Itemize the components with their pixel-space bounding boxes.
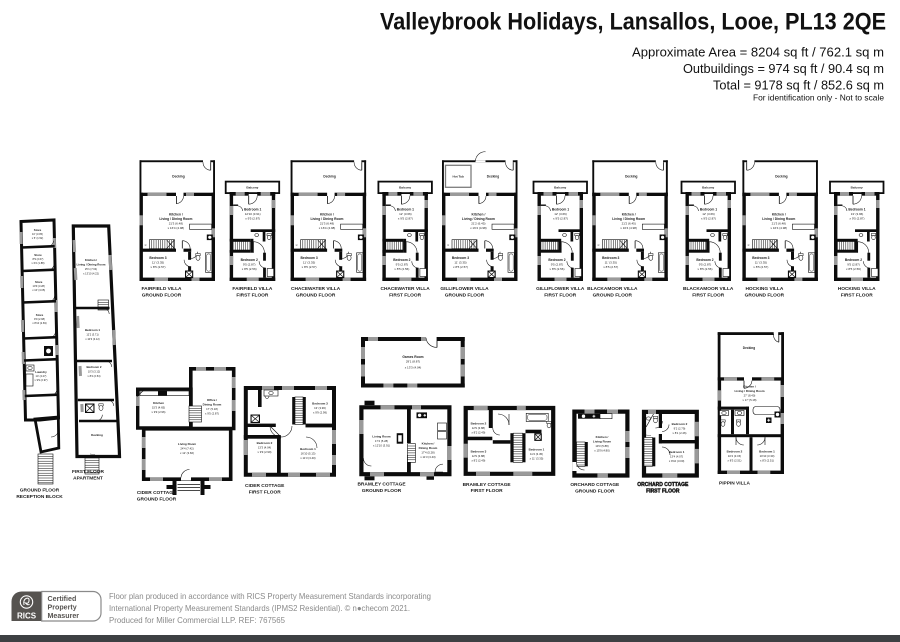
- svg-text:Bedroom 3: Bedroom 3: [452, 256, 469, 260]
- svg-text:12' (3.66): 12' (3.66): [554, 212, 567, 216]
- svg-text:17'4 (5.28): 17'4 (5.28): [421, 451, 434, 455]
- svg-text:Down: Down: [90, 454, 96, 456]
- svg-text:9'9 (2.98): 9'9 (2.98): [34, 317, 45, 321]
- svg-text:Floor plan produced in accorda: Floor plan produced in accordance with R…: [109, 591, 431, 601]
- svg-text:Kitchen /: Kitchen /: [743, 385, 756, 389]
- svg-text:11' (3.35): 11' (3.35): [152, 261, 164, 265]
- svg-text:16'10 (5.13): 16'10 (5.13): [301, 452, 316, 456]
- svg-text:x 16'4 (4.98): x 16'4 (4.98): [620, 226, 637, 230]
- svg-text:x 9'9 (2.99): x 9'9 (2.99): [313, 411, 327, 415]
- svg-text:Kitchen /: Kitchen /: [169, 213, 183, 217]
- svg-text:Living / Dining Room: Living / Dining Room: [462, 217, 495, 221]
- svg-text:Bedroom 2: Bedroom 2: [257, 441, 273, 445]
- svg-text:ORCHARD COTTAGE: ORCHARD COTTAGE: [570, 482, 620, 488]
- svg-text:Bedroom 1: Bedroom 1: [244, 208, 261, 212]
- svg-text:FIRST FLOOR: FIRST FLOOR: [389, 292, 422, 298]
- svg-text:Bedroom 2: Bedroom 2: [86, 365, 101, 369]
- svg-text:Living / Dining Room: Living / Dining Room: [762, 217, 795, 221]
- svg-text:Balcony: Balcony: [399, 185, 411, 189]
- svg-text:x 9'10 (3.00): x 9'10 (3.00): [669, 459, 685, 463]
- svg-text:x 11' (3.35): x 11' (3.35): [530, 457, 544, 461]
- svg-text:Dining Room: Dining Room: [419, 446, 438, 450]
- svg-text:Bedroom 1: Bedroom 1: [759, 450, 775, 454]
- svg-text:Store: Store: [34, 253, 42, 257]
- svg-text:RECEPTION BLOCK: RECEPTION BLOCK: [16, 494, 63, 500]
- svg-text:x 8'5 (2.56): x 8'5 (2.56): [698, 267, 713, 271]
- svg-text:Outbuildings = 974 sq ft / 90.: Outbuildings = 974 sq ft / 90.4 sq m: [683, 61, 884, 76]
- svg-text:12'10 (3.91): 12'10 (3.91): [245, 212, 261, 216]
- svg-text:Kitchen /: Kitchen /: [596, 435, 609, 439]
- svg-text:x 8'5 (2.56): x 8'5 (2.56): [242, 267, 257, 271]
- svg-text:x 9'5 (2.87): x 9'5 (2.87): [205, 412, 219, 416]
- svg-text:FIRST FLOOR: FIRST FLOOR: [236, 292, 269, 298]
- svg-text:Dining Room: Dining Room: [203, 403, 222, 407]
- svg-text:Bedroom 2: Bedroom 2: [672, 422, 688, 426]
- svg-text:Bedroom 3: Bedroom 3: [300, 256, 317, 260]
- svg-text:11' (3.35): 11' (3.35): [303, 261, 315, 265]
- svg-text:x 8'5 (2.57): x 8'5 (2.57): [753, 265, 768, 269]
- svg-text:Decking: Decking: [625, 175, 637, 179]
- svg-text:21'2 (6.45): 21'2 (6.45): [471, 222, 485, 226]
- svg-text:x 9'5 (2.87): x 9'5 (2.87): [245, 217, 260, 221]
- svg-text:x 13'10 (4.22): x 13'10 (4.22): [83, 272, 99, 276]
- svg-text:Bedroom 2: Bedroom 2: [241, 258, 258, 262]
- svg-text:x 16'4 (4.98): x 16'4 (4.98): [168, 226, 185, 230]
- svg-text:21'2 (6.45): 21'2 (6.45): [622, 222, 636, 226]
- svg-text:Store: Store: [35, 280, 43, 284]
- svg-text:Games Room: Games Room: [402, 355, 423, 359]
- svg-text:GROUND FLOOR: GROUND FLOOR: [575, 488, 615, 494]
- svg-text:15'3 (4.65): 15'3 (4.65): [152, 406, 165, 410]
- svg-text:11'4 (3.45): 11'4 (3.45): [530, 452, 543, 456]
- svg-text:x 8'3 (2.51): x 8'3 (2.51): [760, 459, 774, 463]
- svg-text:FAIRFIELD VILLA: FAIRFIELD VILLA: [142, 286, 183, 292]
- svg-text:10'3 (3.12): 10'3 (3.12): [88, 370, 100, 374]
- svg-text:x 8'5 (2.56): x 8'5 (2.56): [550, 267, 565, 271]
- svg-text:Decking: Decking: [743, 346, 755, 350]
- svg-text:Living / Dining Room: Living / Dining Room: [735, 389, 765, 393]
- svg-text:PIPPIN VILLA: PIPPIN VILLA: [719, 480, 750, 486]
- svg-text:Kitchen /: Kitchen /: [622, 213, 636, 217]
- svg-text:9'5 (2.87): 9'5 (2.87): [551, 263, 564, 267]
- svg-text:CIDER COTTAGE: CIDER COTTAGE: [137, 490, 177, 496]
- svg-text:x 8'5 (2.57): x 8'5 (2.57): [302, 265, 317, 269]
- svg-text:x 8'5 (2.57): x 8'5 (2.57): [151, 265, 166, 269]
- svg-text:24'4 (7.42): 24'4 (7.42): [180, 447, 193, 451]
- svg-text:APARTMENT: APARTMENT: [73, 475, 103, 481]
- svg-text:12'9 (3.88): 12'9 (3.88): [472, 426, 485, 430]
- svg-text:x 8'10 (2.69): x 8'10 (2.69): [32, 321, 46, 325]
- svg-text:ORCHARD COTTAGE: ORCHARD COTTAGE: [637, 482, 689, 488]
- svg-text:13'4 (4.07): 13'4 (4.07): [670, 455, 683, 459]
- svg-text:Living / Dining Room: Living / Dining Room: [311, 217, 344, 221]
- svg-text:Living Room: Living Room: [593, 440, 611, 444]
- svg-text:x 16'4 (4.98): x 16'4 (4.98): [470, 226, 487, 230]
- svg-text:BLACKAMOOR VILLA: BLACKAMOOR VILLA: [683, 286, 734, 292]
- svg-text:GROUND FLOOR: GROUND FLOOR: [362, 488, 402, 494]
- svg-text:8'9 (2.67): 8'9 (2.67): [33, 257, 44, 261]
- svg-text:13'3 (4.04): 13'3 (4.04): [258, 446, 271, 450]
- svg-text:Bedroom 1: Bedroom 1: [552, 208, 569, 212]
- svg-text:21'3 (6.48): 21'3 (6.48): [772, 222, 786, 226]
- svg-text:x 5' (1.52): x 5' (1.52): [32, 236, 44, 240]
- svg-text:11' (3.35): 11' (3.35): [454, 261, 466, 265]
- svg-text:x 9'9 (2.99): x 9'9 (2.99): [258, 450, 272, 454]
- svg-text:Decking: Decking: [172, 175, 184, 179]
- svg-text:Kitchen /: Kitchen /: [85, 258, 97, 262]
- svg-text:10'4 (3.15): 10'4 (3.15): [728, 454, 741, 458]
- svg-text:Bedroom 3: Bedroom 3: [752, 256, 769, 260]
- svg-text:Produced for Miller Commercial: Produced for Miller Commercial LLP. REF:…: [109, 615, 285, 625]
- svg-text:11' (3.35): 11' (3.35): [755, 261, 767, 265]
- svg-text:Bedroom 3: Bedroom 3: [312, 402, 328, 406]
- svg-text:Bedroom 3: Bedroom 3: [602, 256, 619, 260]
- svg-text:x 8'5 (2.57): x 8'5 (2.57): [603, 265, 618, 269]
- svg-text:Bedroom 2: Bedroom 2: [727, 450, 743, 454]
- svg-text:x 8'5 (2.57): x 8'5 (2.57): [453, 265, 468, 269]
- svg-text:Bedroom 2: Bedroom 2: [471, 422, 487, 426]
- svg-text:CHACEWATER VILLA: CHACEWATER VILLA: [291, 286, 341, 292]
- svg-text:19'3 (5.88): 19'3 (5.88): [595, 444, 608, 448]
- svg-text:x 17' (5.18): x 17' (5.18): [743, 398, 757, 402]
- svg-text:Bedroom 1: Bedroom 1: [300, 447, 316, 451]
- svg-text:x 9'9 (2.96): x 9'9 (2.96): [152, 410, 166, 414]
- svg-text:GROUND FLOOR: GROUND FLOOR: [593, 292, 633, 298]
- svg-text:x 11'3 (3.40): x 11'3 (3.40): [300, 456, 315, 460]
- svg-text:x 9'5 (2.87): x 9'5 (2.87): [398, 217, 413, 221]
- svg-text:Balcony: Balcony: [702, 185, 714, 189]
- svg-text:14' (4.27): 14' (4.27): [36, 374, 47, 378]
- svg-text:x 9'5 (2.87): x 9'5 (2.87): [553, 217, 568, 221]
- svg-text:x 9'5 (2.87): x 9'5 (2.87): [850, 217, 865, 221]
- svg-text:Kitchen /: Kitchen /: [320, 213, 334, 217]
- svg-text:9'5 (2.87): 9'5 (2.87): [847, 263, 860, 267]
- svg-text:FIRST FLOOR: FIRST FLOOR: [249, 489, 282, 495]
- svg-text:Decking: Decking: [91, 433, 103, 437]
- svg-text:Total = 9178 sq ft / 852.6 sq: Total = 9178 sq ft / 852.6 sq m: [713, 78, 884, 93]
- svg-text:FAIRFIELD VILLA: FAIRFIELD VILLA: [232, 286, 273, 292]
- svg-text:Measurer: Measurer: [48, 612, 80, 620]
- svg-text:HOCKING VILLA: HOCKING VILLA: [745, 286, 783, 292]
- svg-text:25'1 (7.64): 25'1 (7.64): [85, 267, 97, 271]
- svg-text:BLACKAMOOR VILLA: BLACKAMOOR VILLA: [587, 286, 638, 292]
- svg-text:FIRST FLOOR: FIRST FLOOR: [544, 292, 577, 298]
- svg-text:GROUND FLOOR: GROUND FLOOR: [20, 488, 60, 494]
- svg-text:9'5 (2.87): 9'5 (2.87): [699, 263, 712, 267]
- svg-text:Living Room: Living Room: [178, 442, 196, 446]
- svg-text:FIRST FLOOR: FIRST FLOOR: [646, 488, 680, 494]
- svg-text:12' (3.66): 12' (3.66): [399, 212, 412, 216]
- svg-text:Kitchen /: Kitchen /: [471, 213, 485, 217]
- svg-text:Living / Dining Room: Living / Dining Room: [612, 217, 645, 221]
- svg-text:x 8'5 (2.56): x 8'5 (2.56): [846, 267, 861, 271]
- svg-text:BRAMLEY COTTAGE: BRAMLEY COTTAGE: [463, 482, 512, 488]
- svg-text:FIRST FLOOR: FIRST FLOOR: [841, 292, 874, 298]
- svg-text:Kitchen /: Kitchen /: [422, 442, 435, 446]
- svg-text:Living / Dining Room: Living / Dining Room: [159, 217, 192, 221]
- svg-text:Living Room: Living Room: [372, 435, 390, 439]
- svg-text:International Property Measure: International Property Measurement Stand…: [109, 603, 410, 613]
- svg-text:12' (3.66): 12' (3.66): [702, 212, 715, 216]
- svg-text:Bedroom 1: Bedroom 1: [669, 450, 685, 454]
- svg-text:x 16'4 (4.98): x 16'4 (4.98): [771, 226, 788, 230]
- svg-text:Approximate Area = 8204 sq ft: Approximate Area = 8204 sq ft / 762.1 sq…: [632, 45, 884, 60]
- svg-text:Bedroom 1: Bedroom 1: [85, 328, 100, 332]
- svg-text:GROUND FLOOR: GROUND FLOOR: [745, 292, 785, 298]
- svg-text:x 9'9 (2.97): x 9'9 (2.97): [35, 378, 48, 382]
- svg-text:21'3 (6.48): 21'3 (6.48): [320, 222, 334, 226]
- svg-text:11' (3.35): 11' (3.35): [605, 261, 617, 265]
- svg-text:Hot Tub: Hot Tub: [452, 175, 464, 179]
- svg-text:9'5 (2.87): 9'5 (2.87): [243, 263, 256, 267]
- svg-text:12'2 (3.71): 12'2 (3.71): [86, 333, 98, 337]
- svg-text:Bedroom 2: Bedroom 2: [696, 258, 713, 262]
- svg-text:Balcony: Balcony: [554, 185, 566, 189]
- svg-text:Property: Property: [48, 603, 77, 611]
- svg-text:Decking: Decking: [323, 175, 335, 179]
- svg-text:21'3 (6.48): 21'3 (6.48): [169, 222, 183, 226]
- svg-text:Bedroom 1: Bedroom 1: [529, 448, 545, 452]
- svg-text:x 13'3 (4.04): x 13'3 (4.04): [405, 366, 422, 370]
- svg-text:x 9'5 (2.87): x 9'5 (2.87): [701, 217, 716, 221]
- svg-text:x 8'2 (2.49): x 8'2 (2.49): [471, 431, 485, 435]
- svg-text:Bedroom 2: Bedroom 2: [548, 258, 565, 262]
- svg-text:13' (3.96): 13' (3.96): [851, 212, 864, 216]
- svg-text:x 8'3 (2.51): x 8'3 (2.51): [728, 459, 742, 463]
- svg-text:Certified: Certified: [48, 595, 77, 603]
- svg-text:10' (3.05): 10' (3.05): [32, 232, 43, 236]
- svg-text:GROUND FLOOR: GROUND FLOOR: [296, 292, 336, 298]
- svg-text:RICS: RICS: [17, 612, 37, 621]
- svg-text:Bedroom 3: Bedroom 3: [149, 256, 166, 260]
- svg-text:CHACEWATER VILLA: CHACEWATER VILLA: [380, 286, 430, 292]
- svg-text:x 16'4 (4.98): x 16'4 (4.98): [319, 226, 336, 230]
- svg-text:17' (5.18): 17' (5.18): [206, 407, 218, 411]
- svg-text:Balcony: Balcony: [246, 185, 258, 189]
- svg-text:Bedroom 1: Bedroom 1: [397, 208, 414, 212]
- svg-text:Store: Store: [34, 228, 42, 232]
- svg-text:Kitchen /: Kitchen /: [772, 213, 786, 217]
- svg-text:Bedroom 2: Bedroom 2: [845, 258, 862, 262]
- svg-text:9'2 (2.79): 9'2 (2.79): [674, 427, 686, 431]
- svg-text:27' (8.40): 27' (8.40): [744, 394, 756, 398]
- svg-text:GROUND FLOOR: GROUND FLOOR: [137, 497, 177, 503]
- svg-text:FIRST FLOOR: FIRST FLOOR: [72, 469, 105, 475]
- svg-text:Bedroom 1: Bedroom 1: [700, 208, 717, 212]
- svg-text:HOCKING VILLA: HOCKING VILLA: [838, 286, 876, 292]
- svg-text:Laundry: Laundry: [35, 370, 47, 374]
- svg-text:Decking: Decking: [487, 175, 499, 179]
- svg-text:x 11'3 (3.43): x 11'3 (3.43): [420, 455, 435, 459]
- svg-text:x 12' (3.66): x 12' (3.66): [180, 451, 194, 455]
- svg-text:GROUND FLOOR: GROUND FLOOR: [445, 292, 485, 298]
- svg-text:GILLIFLOWER VILLA: GILLIFLOWER VILLA: [536, 286, 585, 292]
- svg-text:x 8'2 (2.49): x 8'2 (2.49): [471, 459, 485, 463]
- svg-text:x 15'9 (4.80): x 15'9 (4.80): [594, 449, 610, 453]
- svg-text:GROUND FLOOR: GROUND FLOOR: [142, 292, 182, 298]
- svg-text:Bedroom 1: Bedroom 1: [848, 208, 865, 212]
- svg-text:For identification only - Not: For identification only - Not to scale: [753, 93, 884, 103]
- svg-text:Living / Dining Room: Living / Dining Room: [77, 263, 106, 267]
- svg-text:GILLIFLOWER VILLA: GILLIFLOWER VILLA: [440, 286, 489, 292]
- svg-text:17'4 (5.28): 17'4 (5.28): [375, 439, 388, 443]
- svg-text:x 8'5 (2.56): x 8'5 (2.56): [394, 267, 409, 271]
- svg-text:Balcony: Balcony: [851, 185, 863, 189]
- svg-text:Kitchen: Kitchen: [153, 401, 164, 405]
- svg-text:BRAMLEY COTTAGE: BRAMLEY COTTAGE: [357, 482, 406, 488]
- svg-text:Bedroom 2: Bedroom 2: [393, 258, 410, 262]
- svg-text:Store: Store: [36, 313, 44, 317]
- svg-text:10'9 (3.28): 10'9 (3.28): [33, 284, 45, 288]
- svg-text:x 6'2 (1.88): x 6'2 (1.88): [32, 261, 45, 265]
- svg-text:12'9 (3.88): 12'9 (3.88): [472, 454, 485, 458]
- svg-text:10'10 (3.30): 10'10 (3.30): [760, 454, 775, 458]
- svg-text:x 8'1 (2.46): x 8'1 (2.46): [673, 431, 687, 435]
- svg-text:x 12'10 (3.91): x 12'10 (3.91): [373, 444, 390, 448]
- svg-text:Valleybrook Holidays, Lansallo: Valleybrook Holidays, Lansallos, Looe, P…: [380, 9, 886, 36]
- svg-text:FIRST FLOOR: FIRST FLOOR: [692, 292, 725, 298]
- svg-text:29'1 (8.87): 29'1 (8.87): [406, 360, 420, 364]
- svg-text:FIRST FLOOR: FIRST FLOOR: [471, 488, 504, 494]
- svg-text:Decking: Decking: [775, 175, 787, 179]
- svg-text:x 10' (3.05): x 10' (3.05): [32, 288, 45, 292]
- svg-text:9'5 (2.87): 9'5 (2.87): [396, 263, 409, 267]
- svg-text:Bedroom 3: Bedroom 3: [471, 450, 487, 454]
- svg-text:13' (3.96): 13' (3.96): [314, 406, 326, 410]
- svg-text:x 8'4 (2.54): x 8'4 (2.54): [88, 374, 101, 378]
- svg-text:Down: Down: [646, 435, 652, 437]
- svg-text:CIDER COTTAGE: CIDER COTTAGE: [245, 483, 285, 489]
- svg-text:Office /: Office /: [207, 398, 217, 402]
- svg-text:x 10'3 (3.12): x 10'3 (3.12): [85, 337, 99, 341]
